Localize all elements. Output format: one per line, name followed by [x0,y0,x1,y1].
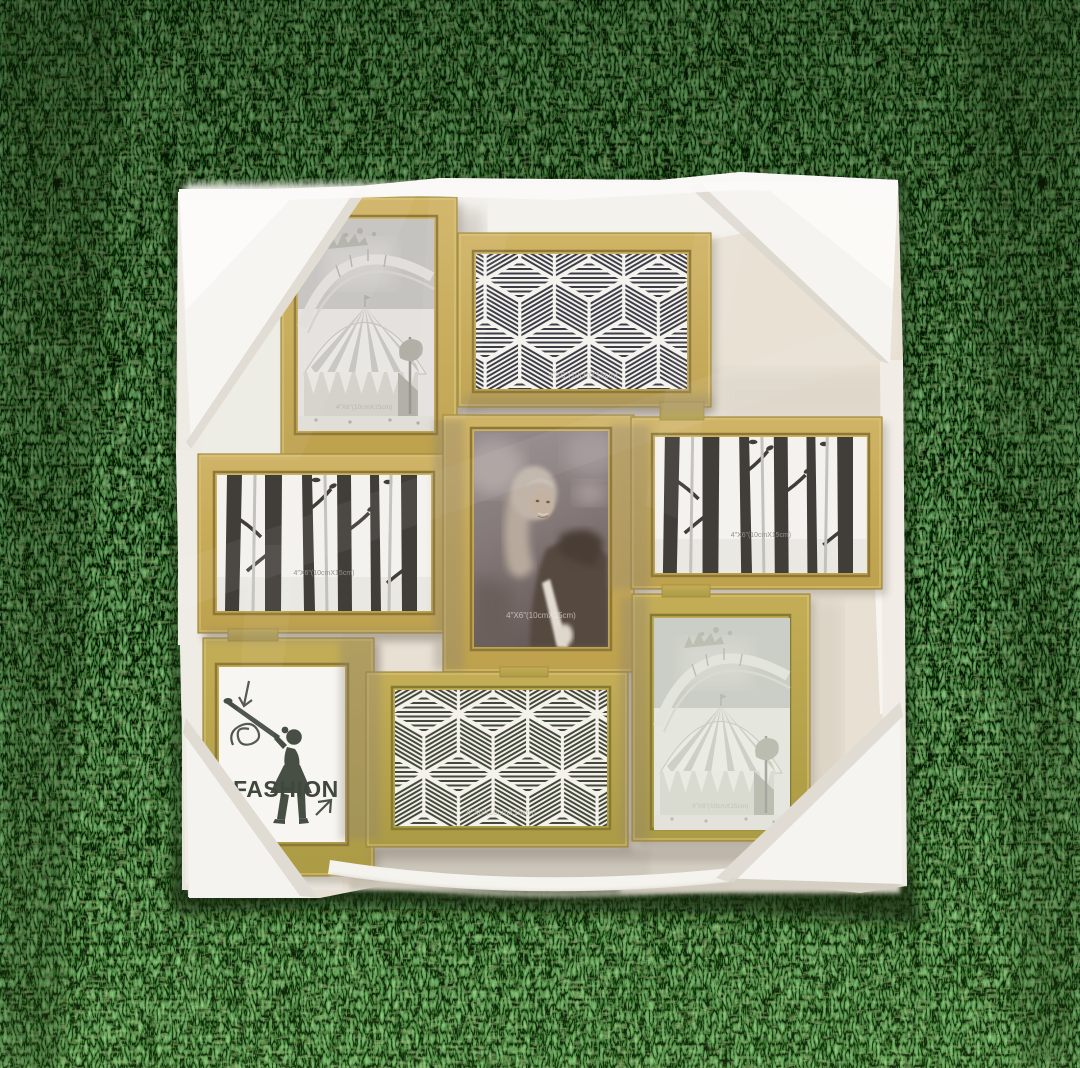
svg-text:4″X6″(10cmX15cm): 4″X6″(10cmX15cm) [548,371,618,380]
svg-text:4″X6″(10cmX15cm): 4″X6″(10cmX15cm) [506,611,576,620]
svg-text:4″X6″(10cmX15cm): 4″X6″(10cmX15cm) [466,808,536,817]
svg-text:FASHION: FASHION [233,776,339,802]
